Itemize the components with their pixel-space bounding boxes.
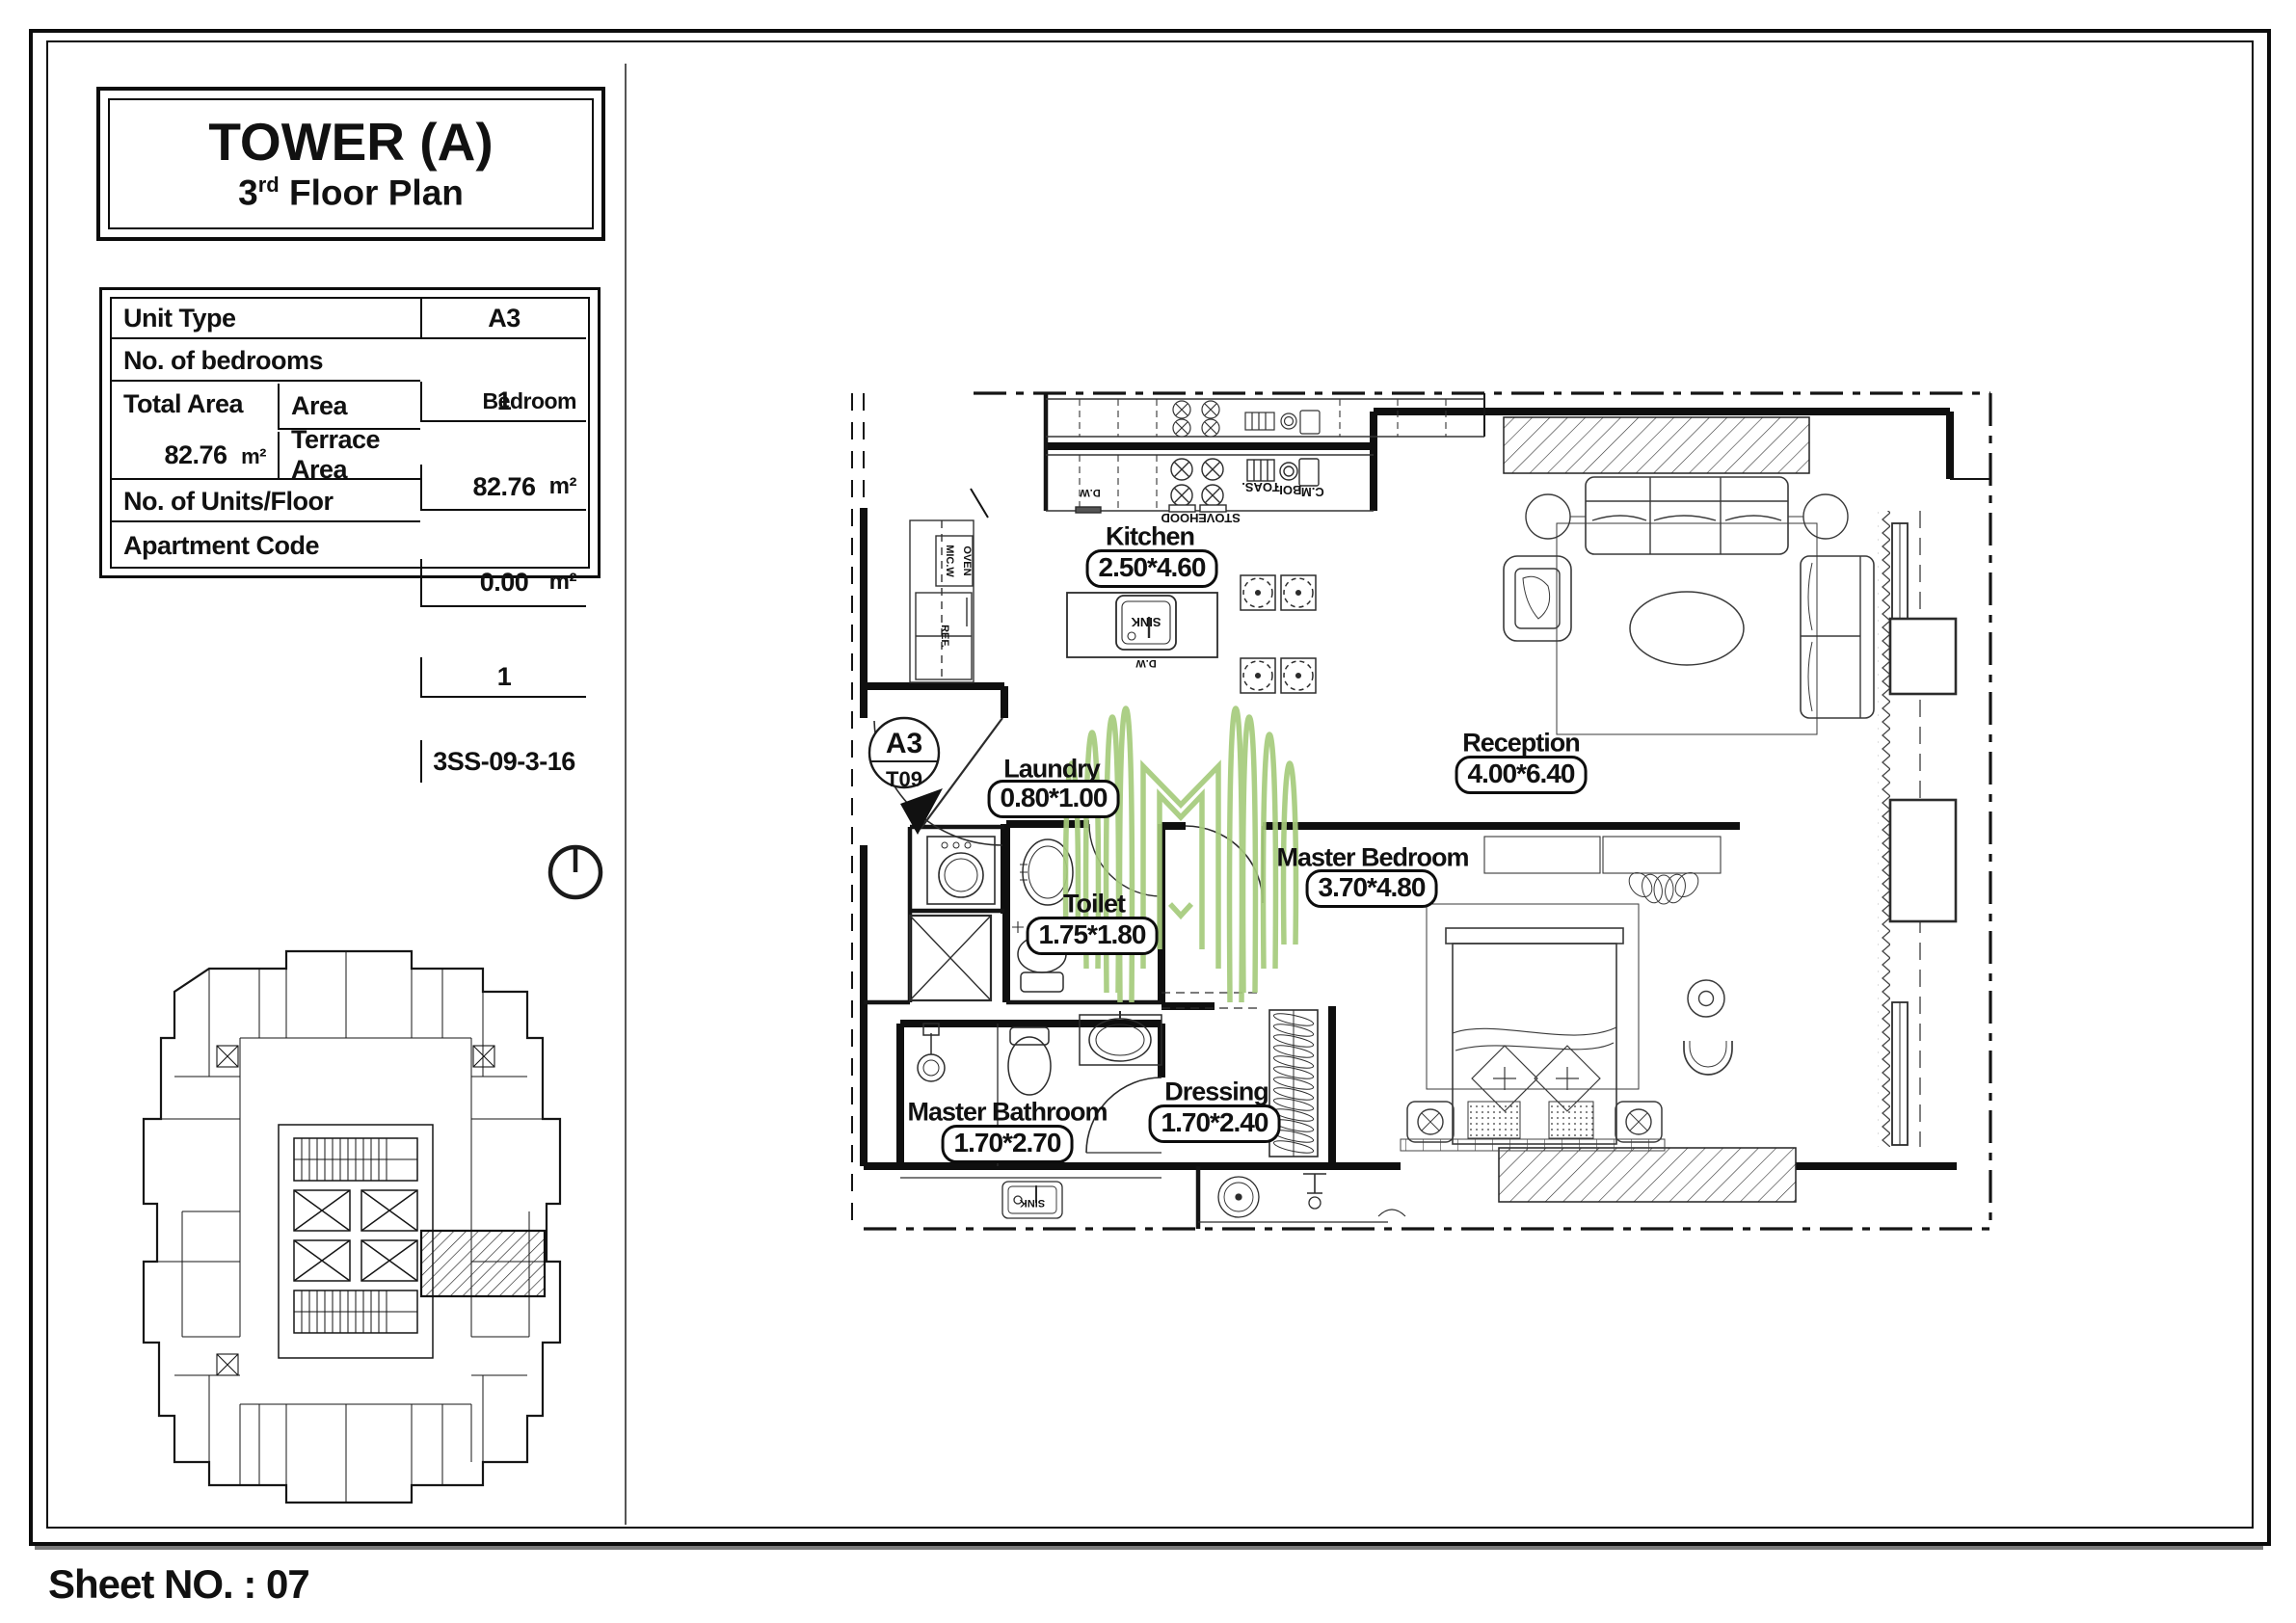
area-label: Area	[278, 384, 420, 430]
bedrooms-label: No. of bedrooms	[112, 341, 420, 382]
apartment-code-value: 3SS-09-3-16	[420, 740, 586, 783]
room-dim-reception: 4.00*6.40	[1455, 756, 1588, 794]
room-label-master-bedroom: Master Bedroom	[1276, 843, 1468, 873]
sheet-inner-border	[46, 40, 2254, 1529]
terrace-area-value: 0.00m²	[420, 559, 586, 607]
room-dim-master-bathroom: 1.70*2.70	[942, 1125, 1074, 1163]
drawing-sheet: HOOD STOVE TOAS. BOI. C.M. SINK D.W D.W …	[0, 0, 2296, 1623]
room-label-toilet: Toilet	[1063, 890, 1125, 919]
units-per-floor-label: No. of Units/Floor	[112, 482, 420, 522]
room-dim-toilet: 1.75*1.80	[1027, 917, 1159, 955]
sheet-number: Sheet NO. : 07	[48, 1561, 309, 1608]
floor-plan-subtitle: 3rd Floor Plan	[238, 173, 464, 213]
total-area-cell: Total Area 82.76m²	[112, 384, 278, 480]
room-dim-kitchen: 2.50*4.60	[1086, 549, 1218, 588]
apartment-code-label: Apartment Code	[112, 524, 420, 567]
unit-type-label: Unit Type	[112, 299, 420, 339]
panel-divider-line	[625, 64, 627, 1525]
unit-type-value: A3	[420, 299, 586, 339]
title-block: TOWER (A) 3rd Floor Plan	[96, 87, 605, 241]
room-label-master-bathroom: Master Bathroom	[907, 1098, 1107, 1128]
room-label-kitchen: Kitchen	[1106, 522, 1194, 552]
room-label-dressing: Dressing	[1164, 1078, 1268, 1107]
tower-title: TOWER (A)	[208, 115, 493, 171]
room-dim-dressing: 1.70*2.40	[1149, 1104, 1281, 1143]
terrace-area-label: Terrace Area	[278, 432, 420, 480]
room-dim-laundry: 0.80*1.00	[988, 780, 1120, 818]
area-value: 82.76m²	[420, 465, 586, 511]
room-dim-master-bedroom: 3.70*4.80	[1306, 869, 1438, 908]
room-label-reception: Reception	[1462, 729, 1580, 758]
units-per-floor-value: 1	[420, 657, 586, 698]
unit-info-table: Unit Type A3 No. of bedrooms 1Bedroom To…	[99, 287, 601, 578]
bedrooms-value: 1Bedroom	[420, 382, 586, 422]
border-shadow-line	[35, 1546, 2263, 1550]
